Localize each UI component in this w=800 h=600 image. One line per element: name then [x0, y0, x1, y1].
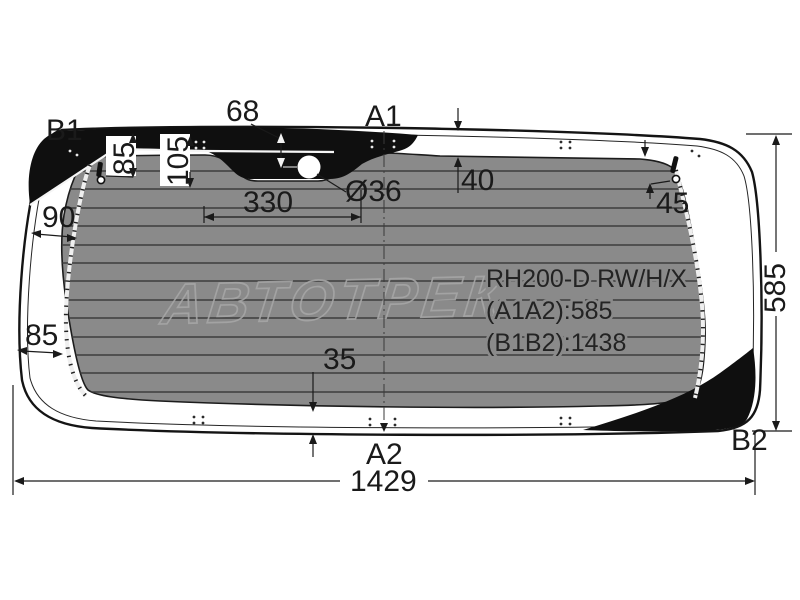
dim-1429-text: 1429 [350, 465, 417, 498]
glass-dimension-diagram: АВТОТРЕК RH200-D RW/H/X (A1A2):585 (B1B2… [0, 0, 800, 600]
label-b2: B2 [731, 424, 768, 457]
dim-85-top: 85 [106, 133, 141, 178]
dim-85-left-text: 85 [25, 319, 58, 352]
dim-105-text: 105 [162, 136, 195, 186]
dim-105: 105 [160, 134, 195, 188]
dim-90-text: 90 [42, 201, 75, 234]
dim-dia36-text: Ø36 [345, 175, 402, 208]
antenna-hole [298, 156, 321, 179]
dim-40-text: 40 [461, 164, 494, 197]
part-dim-b1b2: (B1B2):1438 [486, 329, 626, 357]
part-dim-a1a2: (A1A2):585 [486, 297, 612, 325]
dim-68-text: 68 [226, 95, 259, 128]
dim-330-text: 330 [243, 186, 293, 219]
part-code: RH200-D RW/H/X [486, 265, 687, 293]
label-b1: B1 [46, 114, 83, 147]
label-a1: A1 [365, 100, 402, 133]
dim-585-text: 585 [759, 263, 792, 313]
watermark-text: АВТОТРЕК [157, 264, 509, 337]
diagram-canvas: АВТОТРЕК RH200-D RW/H/X (A1A2):585 (B1B2… [0, 0, 800, 600]
dim-45-text: 45 [656, 187, 689, 220]
dim-85-top-text: 85 [108, 142, 141, 175]
dim-35-text: 35 [323, 343, 356, 376]
